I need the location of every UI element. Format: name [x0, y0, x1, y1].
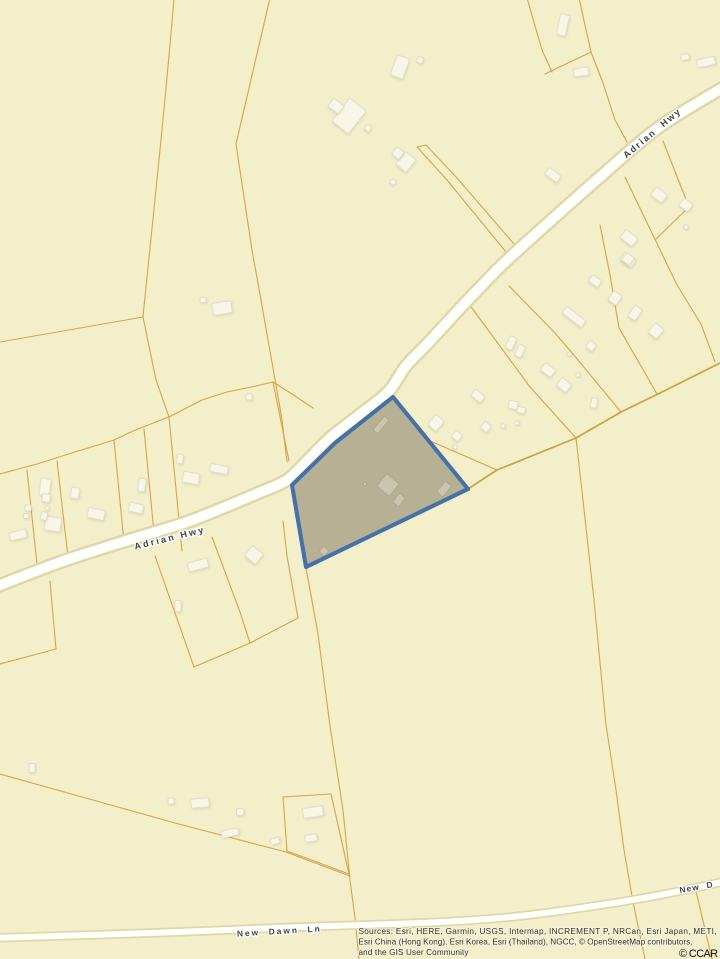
svg-text:© CCAR: © CCAR	[679, 948, 718, 959]
svg-text:and the GIS User Community: and the GIS User Community	[359, 948, 470, 957]
svg-text:Esri China (Hong Kong), Esri K: Esri China (Hong Kong), Esri Korea, Esri…	[359, 938, 693, 947]
svg-text:Sources: Esri, HERE, Garmin, U: Sources: Esri, HERE, Garmin, USGS, Inter…	[359, 927, 717, 936]
